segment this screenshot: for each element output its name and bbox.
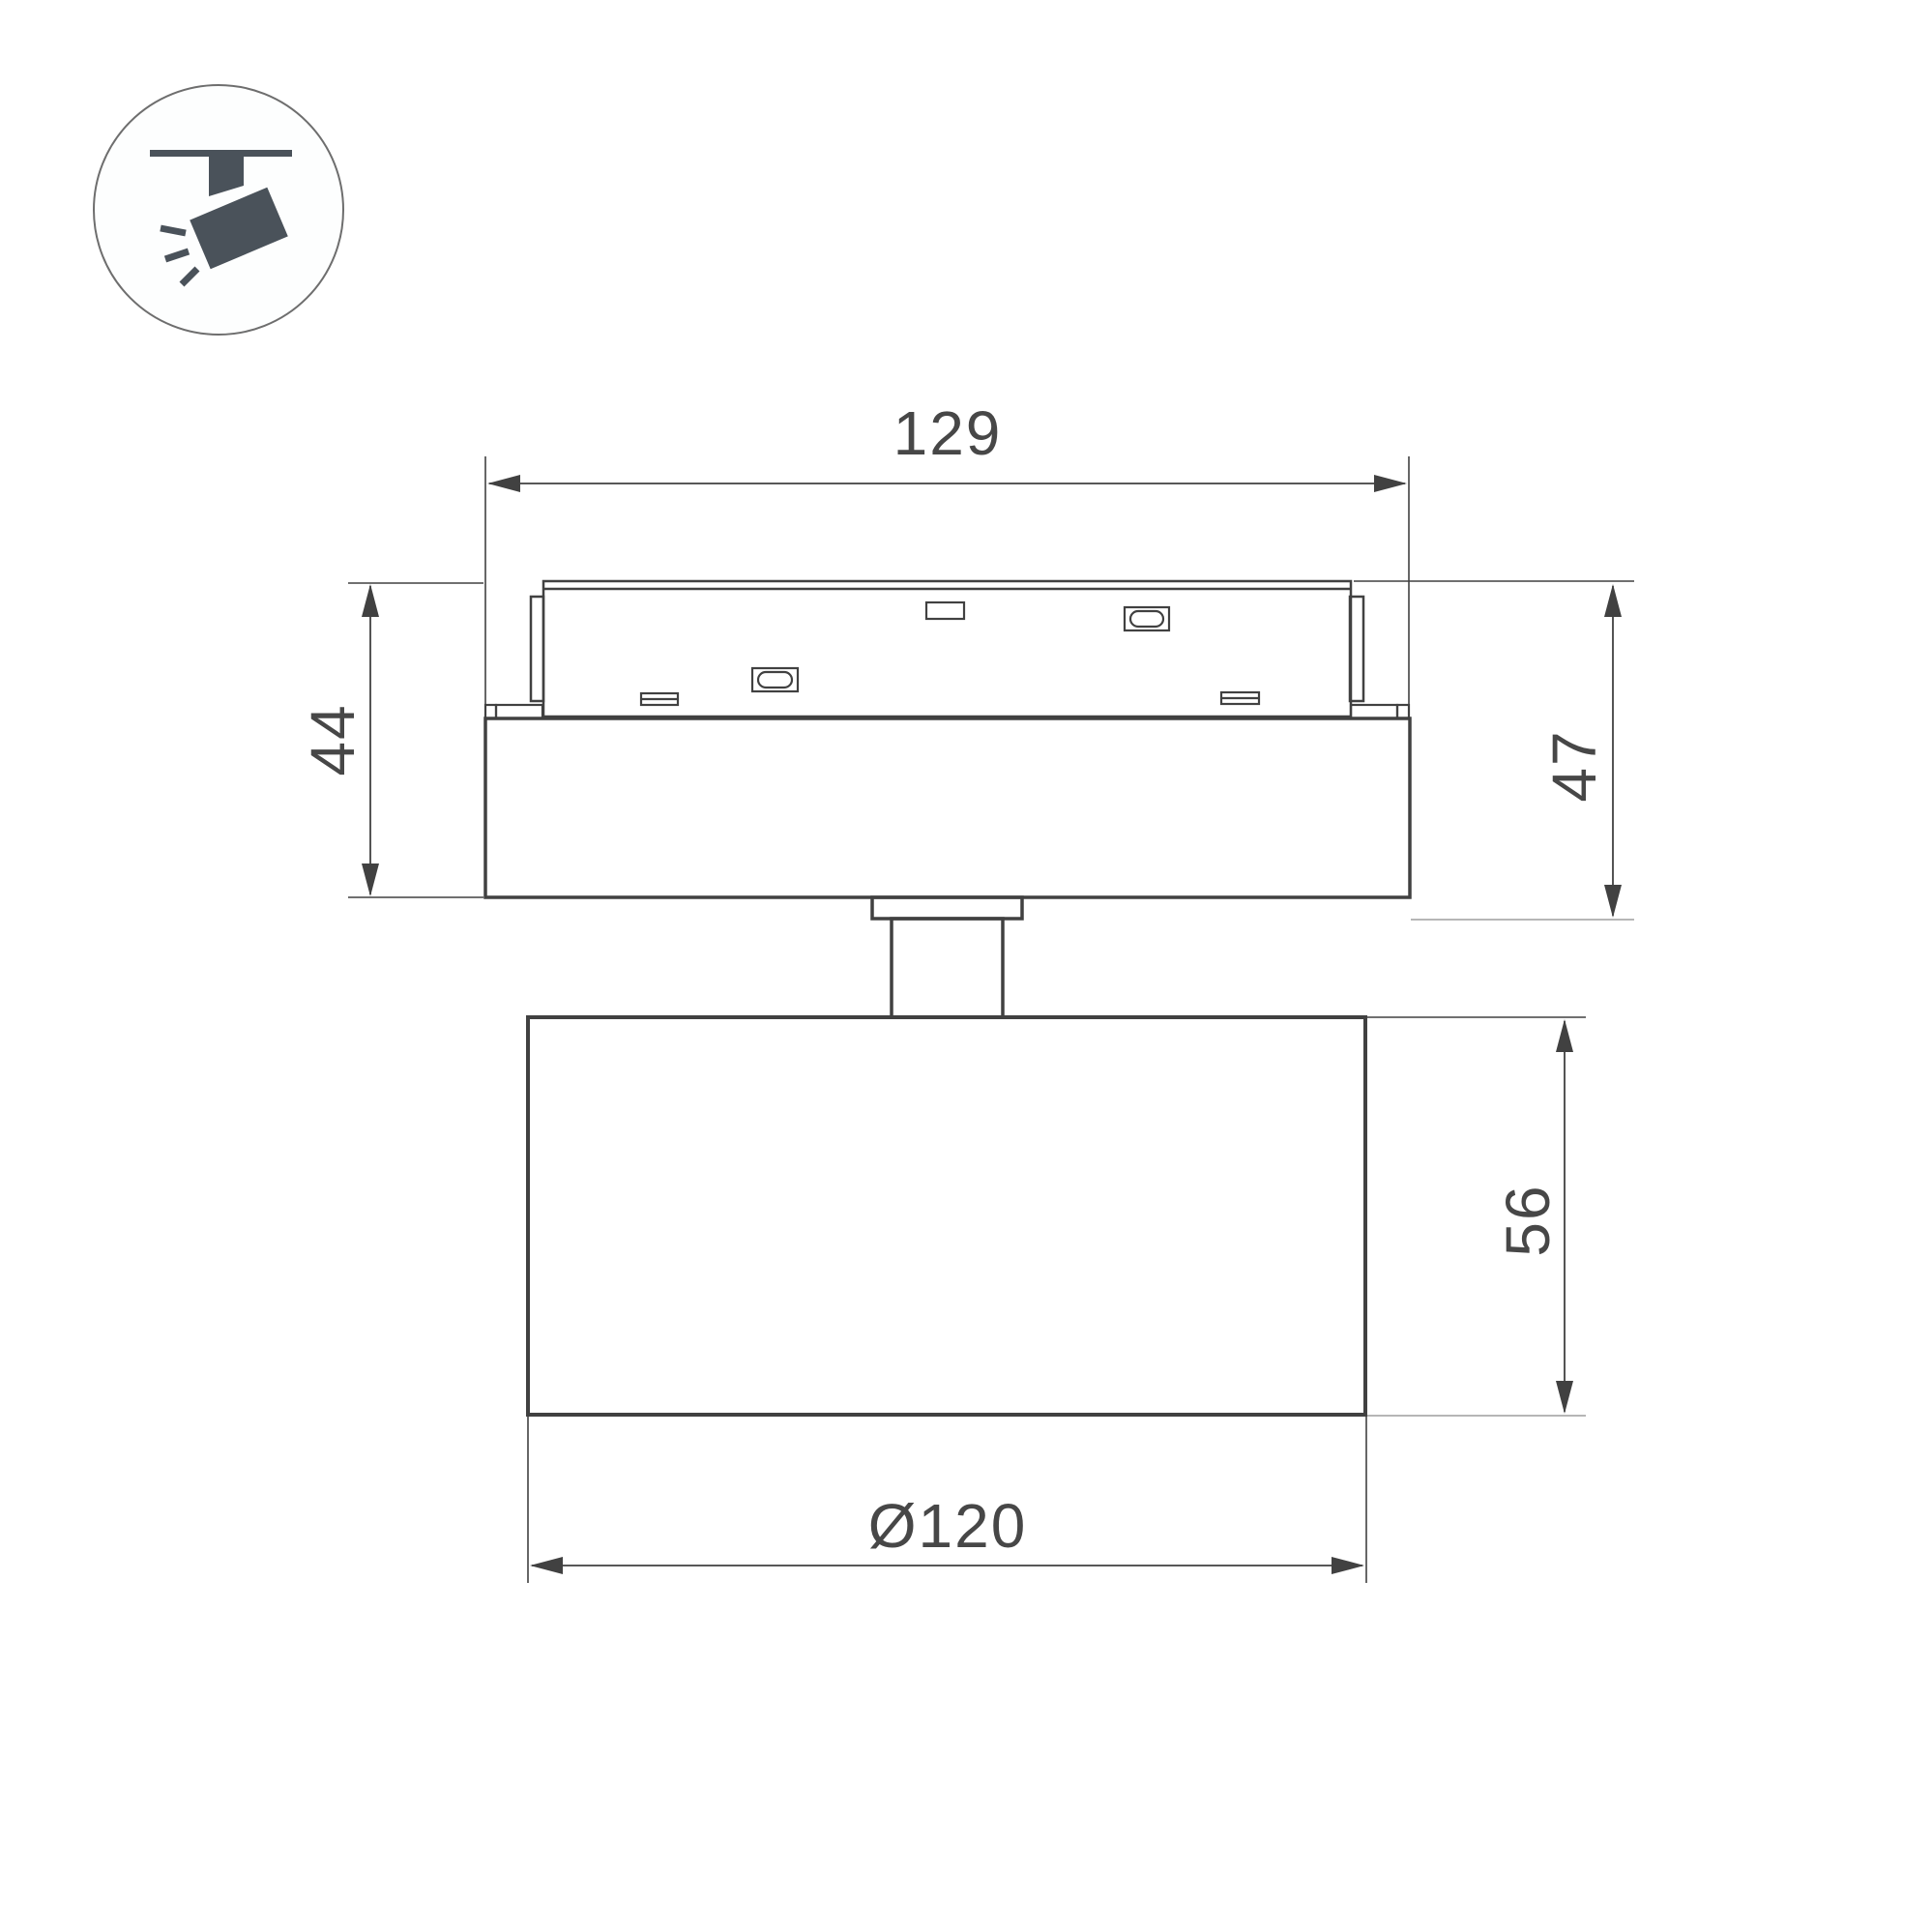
dimension-arrow-right bbox=[1374, 475, 1407, 492]
fixture-outline bbox=[485, 581, 1410, 1415]
dimension-arrow-down bbox=[1604, 885, 1622, 918]
dimension-label-overall-mount-height: 47 bbox=[1539, 729, 1609, 802]
dimension-overall-mount-height: 47 bbox=[1354, 581, 1634, 920]
dimension-arrow-left bbox=[487, 475, 520, 492]
dimension-head-diameter: Ø120 bbox=[528, 1417, 1366, 1583]
adapter-window bbox=[926, 602, 964, 619]
dimension-arrow-down bbox=[362, 864, 379, 896]
dimension-label-head-height: 56 bbox=[1493, 1184, 1563, 1256]
flange-step-left-inner bbox=[496, 705, 542, 718]
dimension-arrow-up bbox=[362, 584, 379, 617]
dimension-arrow-up bbox=[1604, 584, 1622, 617]
flange-step-right-outer bbox=[1397, 705, 1409, 718]
mount-housing bbox=[485, 718, 1410, 897]
track-spotlight-icon bbox=[94, 85, 343, 335]
dimension-adapter-height: 44 bbox=[298, 583, 483, 897]
dimension-arrow-down bbox=[1556, 1381, 1573, 1414]
dimension-arrow-right bbox=[1332, 1557, 1364, 1574]
pivot-collar bbox=[872, 897, 1022, 919]
magnet-contact-left-pill bbox=[758, 672, 792, 688]
drawing-canvas: 129 44 47 56 Ø120 bbox=[0, 0, 1932, 1932]
light-ray-icon bbox=[161, 228, 186, 233]
magnet-contact-right-pill bbox=[1130, 611, 1163, 627]
ceiling-track-bar-icon bbox=[150, 150, 292, 157]
flange-step-right-inner bbox=[1351, 705, 1397, 718]
dimension-adapter-width: 129 bbox=[485, 398, 1409, 716]
flange-step-left-outer bbox=[485, 705, 496, 718]
technical-drawing: 129 44 47 56 Ø120 bbox=[0, 0, 1932, 1932]
dimension-arrow-up bbox=[1556, 1019, 1573, 1052]
spring-tab-left bbox=[531, 597, 543, 701]
dimension-label-adapter-width: 129 bbox=[893, 398, 1003, 468]
pivot-stem bbox=[892, 919, 1003, 1017]
lamp-head bbox=[528, 1017, 1365, 1415]
dimension-head-height: 56 bbox=[1367, 1017, 1586, 1416]
dimension-label-adapter-height: 44 bbox=[298, 703, 367, 776]
dimension-arrow-left bbox=[530, 1557, 563, 1574]
dimension-label-head-diameter: Ø120 bbox=[868, 1491, 1028, 1561]
